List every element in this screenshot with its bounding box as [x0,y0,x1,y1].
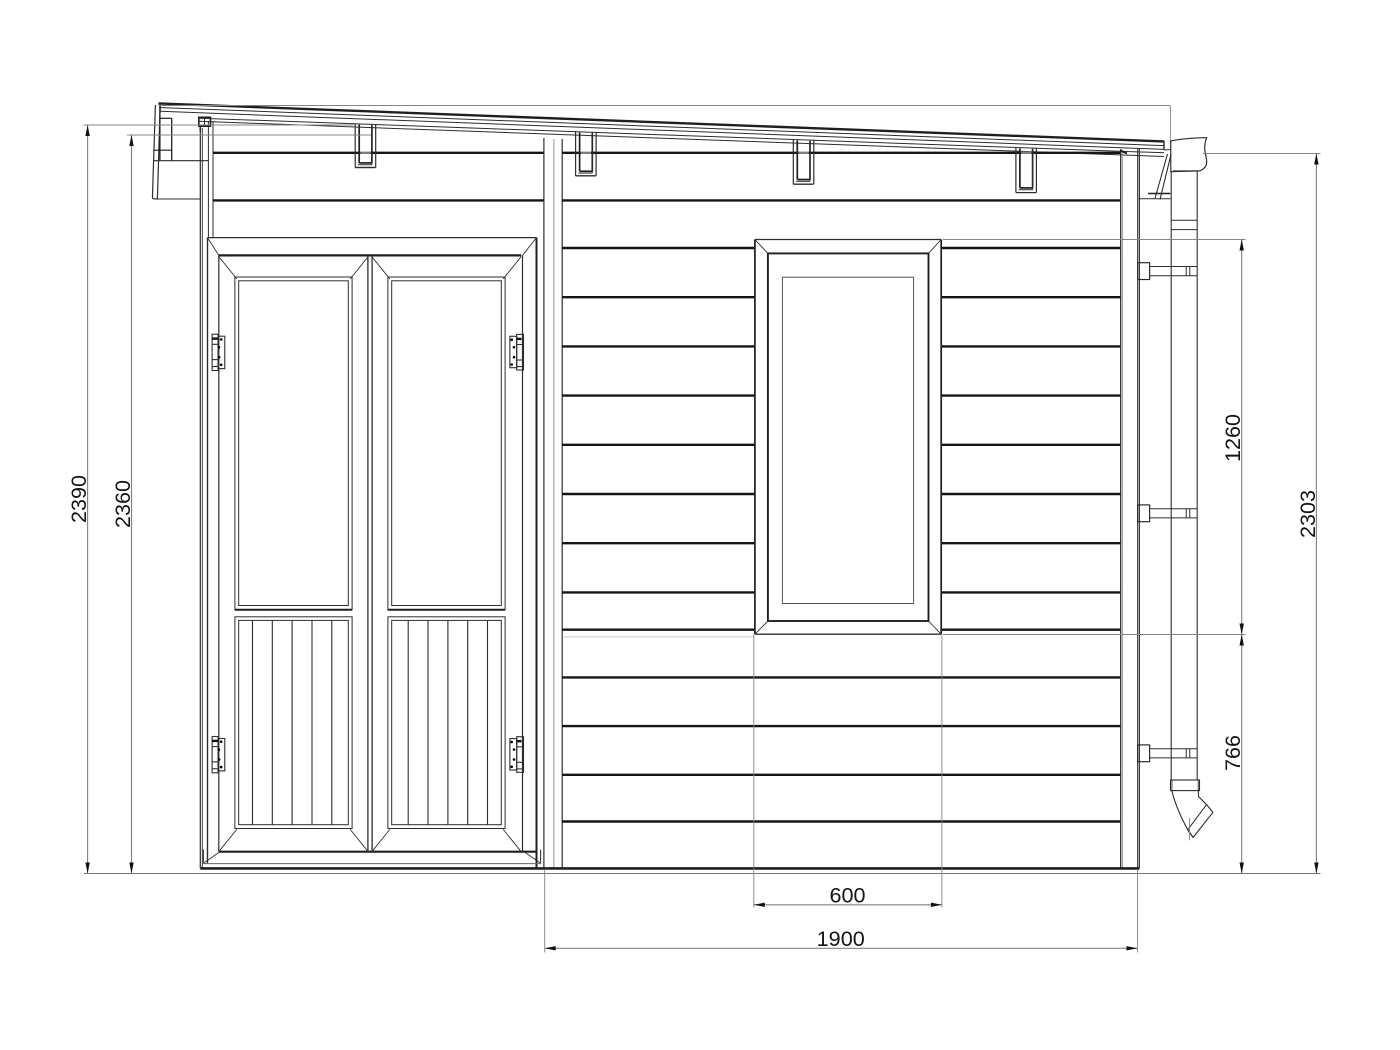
svg-text:2303: 2303 [1295,490,1320,538]
svg-text:1260: 1260 [1220,414,1245,462]
svg-text:766: 766 [1220,735,1245,771]
svg-text:2360: 2360 [110,480,135,528]
svg-text:600: 600 [829,882,865,907]
svg-text:1900: 1900 [817,926,865,951]
svg-text:2390: 2390 [66,475,91,523]
